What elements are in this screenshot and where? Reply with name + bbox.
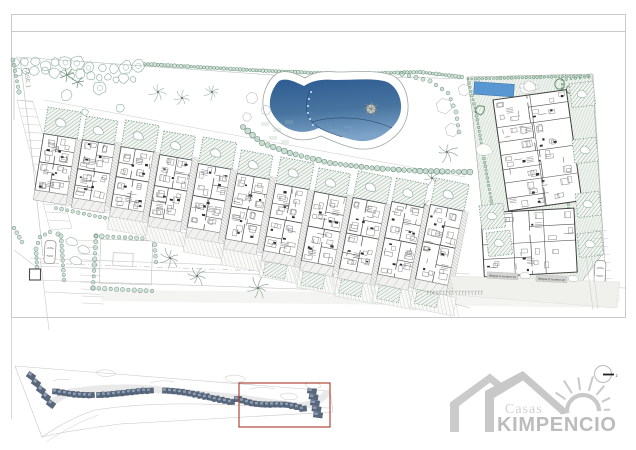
svg-text:KIMPENCIO: KIMPENCIO <box>497 414 617 436</box>
